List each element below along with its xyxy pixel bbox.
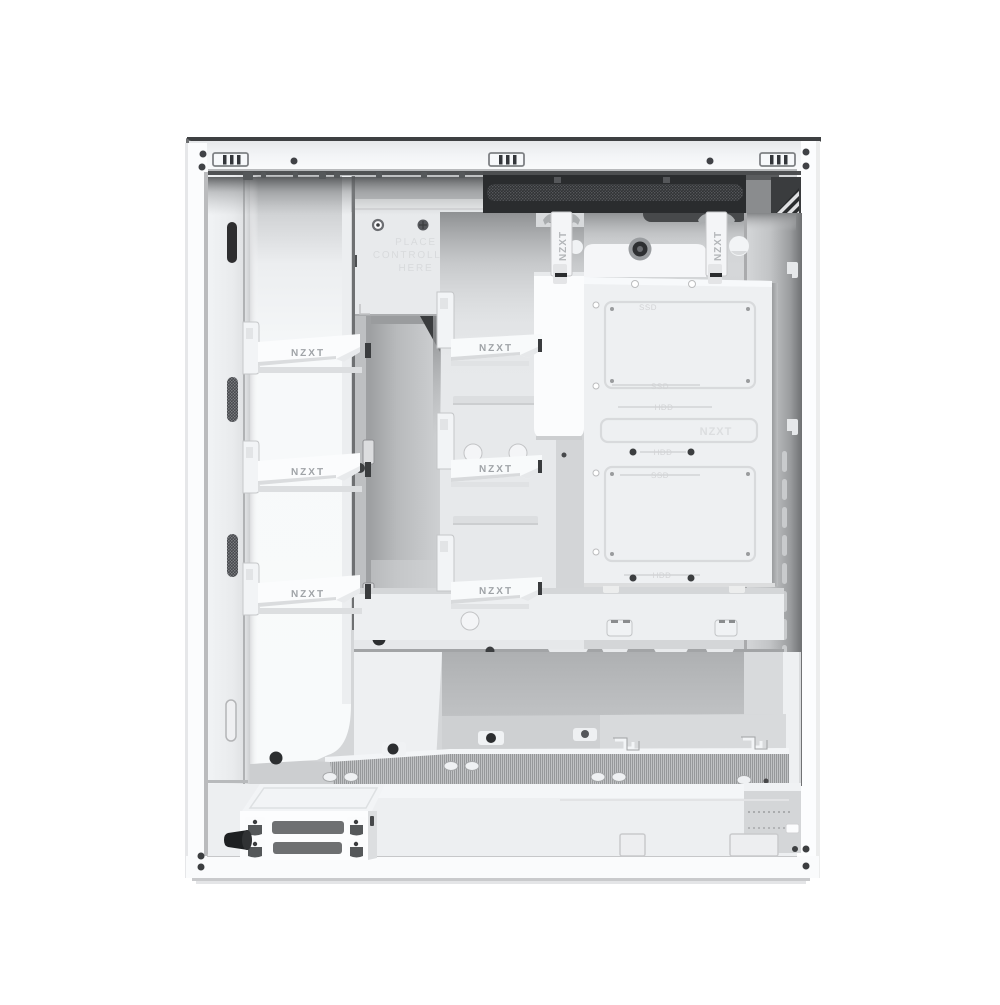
svg-text:HERE: HERE (399, 263, 434, 274)
svg-text:HDD: HDD (653, 571, 672, 580)
svg-text:NZXT: NZXT (291, 348, 325, 359)
svg-text:NZXT: NZXT (291, 467, 325, 478)
svg-text:SSD: SSD (651, 471, 669, 480)
svg-text:SSD: SSD (651, 382, 669, 391)
svg-text:NZXT: NZXT (291, 589, 325, 600)
svg-text:NZXT: NZXT (713, 231, 724, 261)
svg-text:SSD: SSD (639, 303, 657, 312)
svg-text:NZXT: NZXT (700, 426, 733, 438)
svg-text:NZXT: NZXT (479, 464, 513, 475)
svg-text:NZXT: NZXT (479, 343, 513, 354)
svg-text:PLACE: PLACE (395, 237, 437, 248)
svg-text:NZXT: NZXT (558, 231, 569, 261)
svg-text:HDD: HDD (654, 448, 673, 457)
svg-text:HDD: HDD (655, 403, 674, 412)
svg-text:NZXT: NZXT (479, 586, 513, 597)
